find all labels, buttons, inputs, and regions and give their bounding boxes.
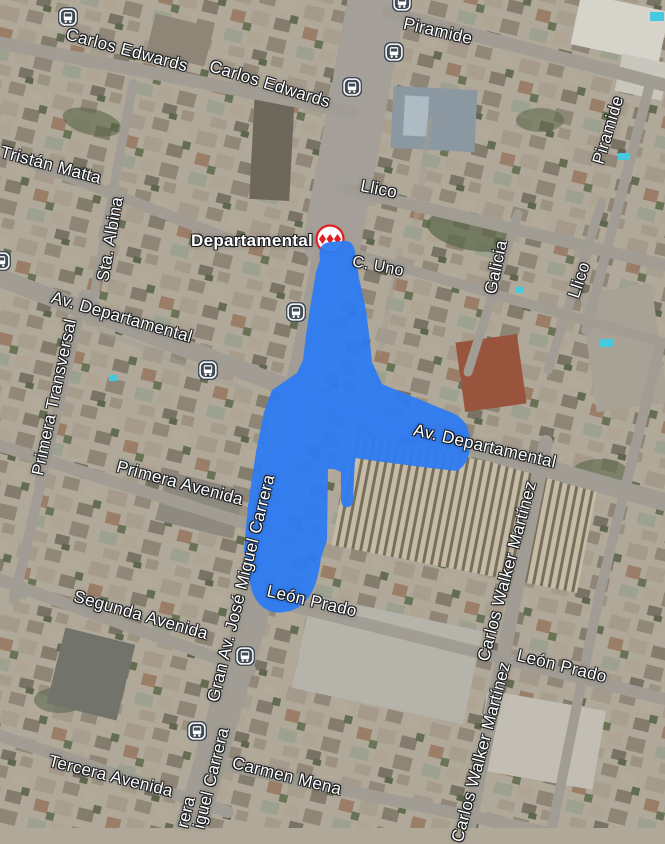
bus-stop-icon[interactable] [187,721,208,742]
bus-stop-icon[interactable] [58,7,79,28]
bus-stop-icon[interactable] [392,0,413,13]
bus-stop-icon[interactable] [286,302,307,323]
satellite-map[interactable] [0,0,665,828]
bus-stop-icon[interactable] [198,360,219,381]
bus-stop-icon[interactable] [235,646,256,667]
bus-stop-icon[interactable] [384,42,405,63]
bus-stop-icon[interactable] [0,251,12,272]
bus-stop-icon[interactable] [342,77,363,98]
